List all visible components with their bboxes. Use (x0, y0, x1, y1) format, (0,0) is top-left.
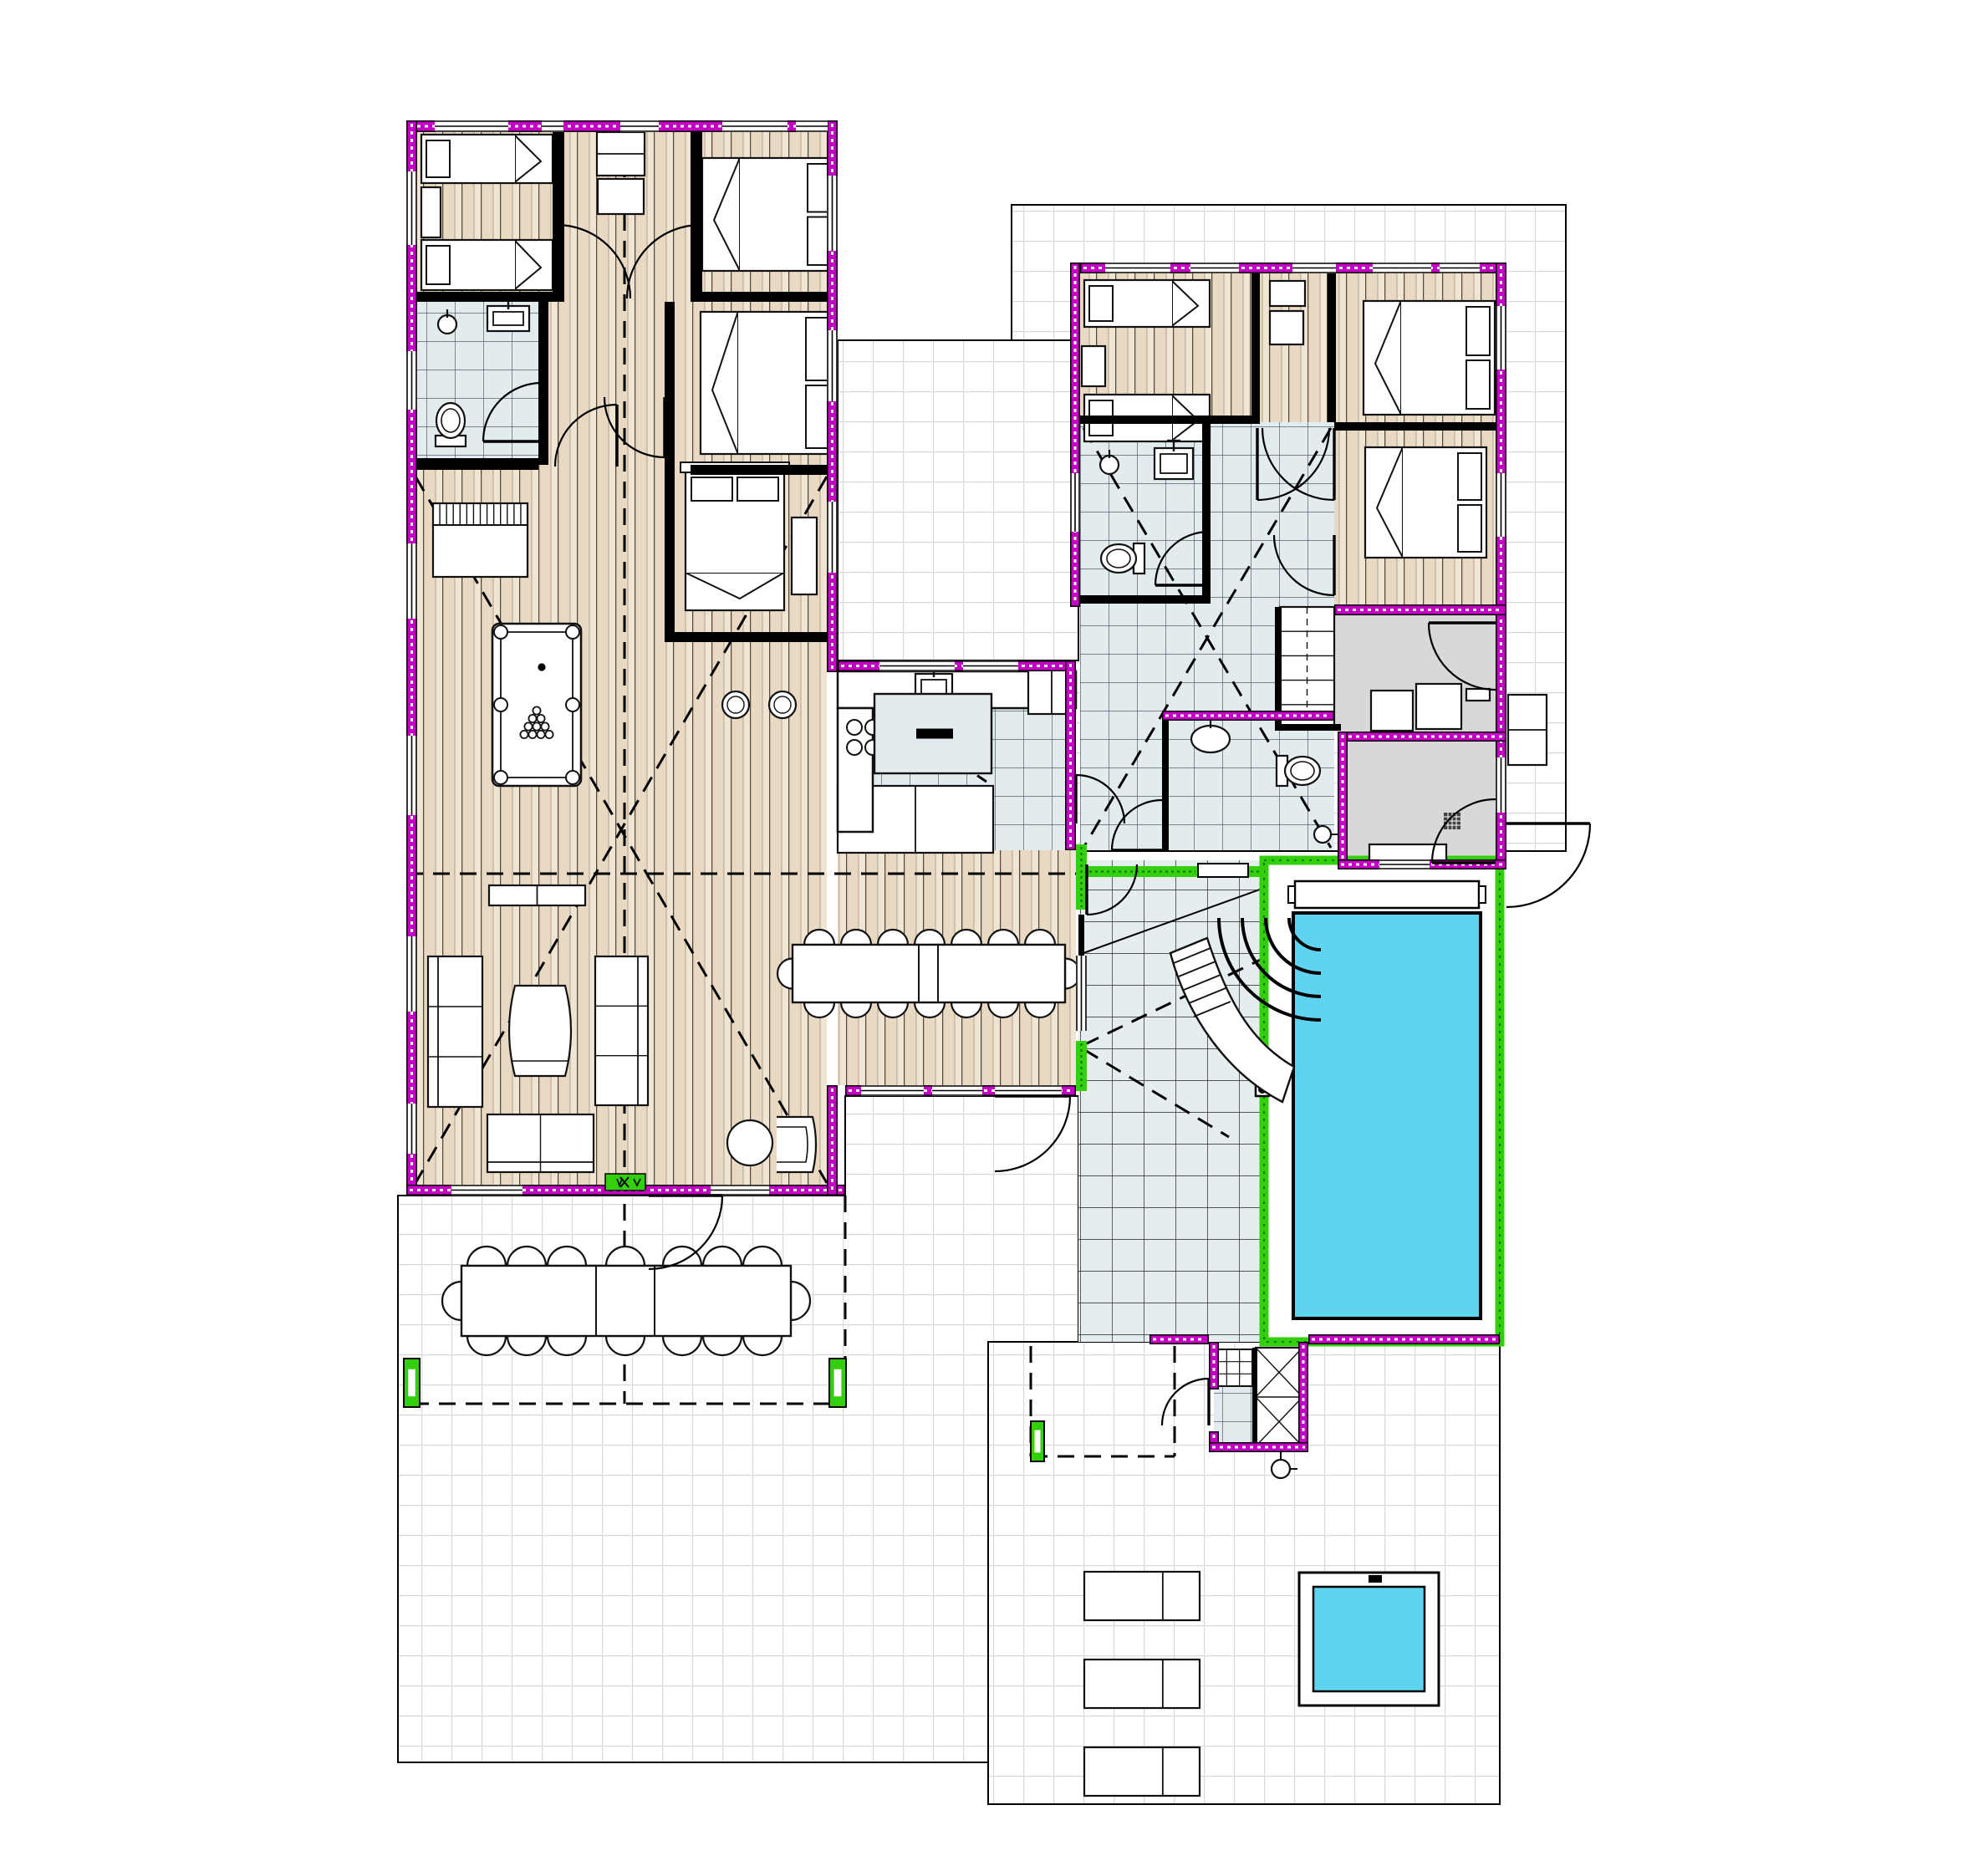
billiard-ball-9 (545, 731, 553, 738)
terrace-table-right (1508, 695, 1547, 765)
green-wall-top-b (1248, 866, 1264, 877)
window-23 (1190, 263, 1239, 273)
window-6 (406, 351, 417, 410)
bed-br4-double (681, 462, 789, 610)
jacuzzi-water (1313, 1587, 1425, 1691)
sun-lounger-1 (1084, 1572, 1200, 1620)
wall-exterior-15 (1162, 711, 1334, 721)
window-7 (406, 543, 417, 619)
billiard-pocket (494, 771, 507, 784)
billiard-pocket (494, 625, 507, 639)
bed-pillow (806, 385, 829, 448)
cabinet-body (1270, 281, 1305, 306)
bench (1214, 1349, 1252, 1386)
nightstand-br5 (1082, 346, 1105, 386)
window-20 (963, 660, 1018, 671)
billiard-ball-2 (537, 715, 544, 722)
wall-interior-14 (1202, 422, 1211, 600)
bar-stool-1 (722, 691, 749, 718)
billiard-ball-4 (533, 722, 540, 730)
window-11 (451, 1185, 522, 1196)
wall-interior-9 (665, 632, 838, 642)
piano (433, 503, 528, 577)
sink-basin (1160, 454, 1187, 473)
closet-br4 (792, 518, 817, 594)
sauna-bench (1214, 1349, 1252, 1386)
billiard-ball-6 (520, 731, 528, 738)
billiard-ball-8 (537, 731, 544, 738)
side-table-round (727, 1120, 772, 1165)
shower-head (1272, 1460, 1290, 1478)
billiard-cloth (501, 632, 573, 778)
sun-lounger-2 (1084, 1660, 1200, 1708)
wall-interior-0 (553, 120, 564, 302)
sauna-wardrobe (1256, 1348, 1302, 1446)
sofa-lounge-bottom (487, 1114, 594, 1172)
cabinet-body (1270, 311, 1303, 344)
toilet (436, 403, 466, 446)
billiard-table (492, 624, 581, 786)
dining-table-indoor (777, 930, 1080, 1017)
closet-hall-a2 (598, 179, 644, 214)
wall-interior-5 (691, 465, 827, 475)
wall-exterior-18 (1209, 1342, 1219, 1389)
bar-stool-2 (769, 691, 796, 718)
wall-interior-10 (1251, 263, 1260, 422)
bed-br1-a (421, 135, 553, 183)
wall-insulation (1211, 1344, 1218, 1389)
wall-interior-8 (665, 465, 675, 637)
cue-ball (538, 663, 545, 671)
window-3 (722, 120, 788, 132)
window-5 (406, 171, 417, 245)
sink-basin (493, 312, 523, 325)
closet-hall-a1 (597, 132, 645, 176)
jacuzzi-inlet (1369, 1575, 1382, 1583)
floor-pool-deck (1078, 860, 1264, 1342)
wall-interior-3 (691, 292, 827, 302)
round-table (727, 1120, 772, 1165)
wall-exterior-20 (1298, 1342, 1308, 1452)
window-22 (1105, 263, 1170, 273)
lounger-body (1084, 1660, 1200, 1708)
window-27 (1496, 306, 1506, 370)
billiard-pocket (566, 771, 579, 784)
bed-pillow (1089, 286, 1113, 321)
basin (438, 315, 456, 334)
billiard-pocket (566, 698, 579, 711)
cabinet-body (1082, 346, 1105, 386)
window-19 (879, 660, 955, 671)
table-top (793, 945, 1065, 1002)
terrace-bottom-left (398, 1096, 1078, 1762)
billiard-ball-3 (524, 722, 532, 730)
bed-pillow (1458, 453, 1481, 500)
wall-interior-7 (665, 302, 675, 473)
u-chair (777, 1117, 816, 1172)
window-1 (542, 120, 563, 132)
toilet (1277, 756, 1320, 786)
window-14 (827, 330, 838, 401)
wall-interior-19 (1252, 1348, 1257, 1446)
green-post-3-core (1034, 1430, 1040, 1453)
bed-pillow (1458, 505, 1481, 552)
window-17 (932, 1085, 982, 1096)
console-lounge (489, 885, 585, 905)
window-28 (1496, 473, 1506, 537)
green-wall-2 (1076, 1041, 1087, 1091)
wall-exterior-21 (1209, 1442, 1308, 1452)
bed-pillow (1466, 307, 1490, 355)
wall-exterior-11 (1334, 604, 1506, 615)
cabinet-body (421, 187, 441, 237)
billiard-ball-5 (541, 722, 548, 730)
wall-interior-2 (415, 292, 564, 302)
window-16 (861, 1085, 924, 1096)
toilet (1101, 543, 1144, 574)
window-10 (406, 1104, 417, 1154)
wall-insulation (828, 1087, 837, 1195)
billiard-pocket (566, 625, 579, 639)
bed-pillow (691, 477, 732, 501)
bed-br7-double (1365, 447, 1486, 558)
cabinet-body (792, 518, 817, 594)
floor-plan (0, 0, 1988, 1856)
wall-exterior-5 (838, 660, 1076, 671)
toilet-bath-a (436, 403, 466, 446)
wall-interior-20 (1078, 915, 1084, 956)
wall-exterior-4 (827, 1085, 838, 1196)
floor-utility-2 (1344, 742, 1496, 859)
window-21 (1076, 956, 1087, 1031)
shelf-utility (1466, 689, 1490, 701)
wall-exterior-13 (1338, 732, 1348, 869)
wall-exterior-1 (406, 120, 417, 1196)
window-24 (1292, 263, 1336, 273)
floor-plan-page (0, 0, 1988, 1856)
bed-pillow (426, 246, 450, 284)
bed-br1-b (421, 240, 553, 290)
bed-br3-double (701, 312, 834, 454)
stool (769, 691, 796, 718)
pool-cover-end-right (1479, 886, 1486, 903)
sofa-body (428, 956, 482, 1107)
toilet-bath-b1 (1101, 543, 1144, 574)
window-31 (1379, 859, 1430, 869)
window-8 (406, 736, 417, 815)
lounger-body (1084, 1747, 1200, 1796)
washer-2 (1416, 684, 1461, 729)
nightstand-br1 (421, 187, 441, 237)
pool-water (1293, 913, 1481, 1318)
closet-hall-b2 (1270, 311, 1303, 344)
barrel-chair (509, 986, 571, 1076)
window-13 (827, 176, 838, 251)
pool-cover-end-left (1288, 886, 1295, 903)
window-15 (827, 502, 838, 573)
floor-drain (1444, 813, 1460, 829)
window-9 (406, 936, 417, 1012)
wall-interior-18 (1162, 721, 1169, 850)
terrace-between-buildings (838, 340, 1078, 660)
stove-burner (847, 720, 862, 735)
window-12 (711, 1185, 769, 1196)
cabinet-body (598, 179, 644, 214)
floor-utility-1 (1334, 615, 1496, 732)
sofa-body (595, 956, 648, 1105)
cabinet-body (1371, 691, 1413, 731)
wall-exterior-9 (1070, 263, 1080, 607)
wall-exterior-17 (1149, 1334, 1209, 1344)
wall-interior-17 (1275, 724, 1341, 731)
bed-pillow (806, 318, 829, 380)
wall-interior-6 (415, 458, 538, 470)
bed-br6-double (1364, 301, 1495, 415)
bed-br5-a (1084, 280, 1210, 327)
window-30 (1070, 473, 1080, 532)
bed-br2-double (702, 158, 836, 271)
dining-table-outdoor (442, 1247, 810, 1355)
bed-pillow (426, 140, 450, 177)
cabinet-body (1416, 684, 1461, 729)
wall-exterior-6 (1065, 660, 1076, 850)
wall-interior-13 (1334, 422, 1506, 431)
wall-interior-11 (1328, 263, 1336, 422)
stool (722, 691, 749, 718)
window-29 (1496, 757, 1506, 813)
pool-cover-roller (1295, 881, 1479, 908)
wall-interior-12 (1080, 416, 1260, 424)
stove-burner (847, 740, 862, 755)
kitchen-island (874, 694, 991, 773)
bed-pillow (737, 477, 778, 501)
billiard-ball-1 (528, 715, 536, 722)
window-4 (796, 120, 828, 132)
billiard-pocket (494, 698, 507, 711)
shower-head (1314, 826, 1331, 843)
basin (1191, 726, 1230, 752)
lounger-body (1084, 1572, 1200, 1620)
window-2 (620, 120, 659, 132)
bed-pillow (1466, 360, 1490, 409)
toilet-bath-b2 (1277, 756, 1320, 786)
island-hob (916, 729, 953, 739)
window-25 (1373, 263, 1431, 273)
green-post-2-core (834, 1369, 842, 1396)
armchair-lounge (509, 986, 571, 1076)
sun-lounger-3 (1084, 1747, 1200, 1796)
basin (1100, 456, 1119, 474)
billiard-ball-7 (528, 731, 536, 738)
wall-insulation (1300, 1344, 1307, 1451)
washer-1 (1371, 691, 1413, 731)
green-door-leaf (1198, 864, 1248, 877)
sofa-lounge-left (428, 956, 482, 1107)
wall-exterior-16 (1308, 1334, 1500, 1344)
window-18 (995, 1085, 1062, 1096)
green-post-1-core (408, 1369, 415, 1396)
wall-interior-15 (1080, 595, 1211, 604)
reading-chair (777, 1117, 816, 1172)
wall-exterior-12 (1338, 732, 1506, 742)
window-26 (1440, 263, 1480, 273)
sofa-lounge-right (595, 956, 648, 1105)
window-0 (435, 120, 508, 132)
cabinet-body (1466, 689, 1490, 701)
closet-hall-b1 (1270, 281, 1305, 306)
table-top (461, 1266, 791, 1336)
billiard-ball-0 (533, 706, 540, 714)
